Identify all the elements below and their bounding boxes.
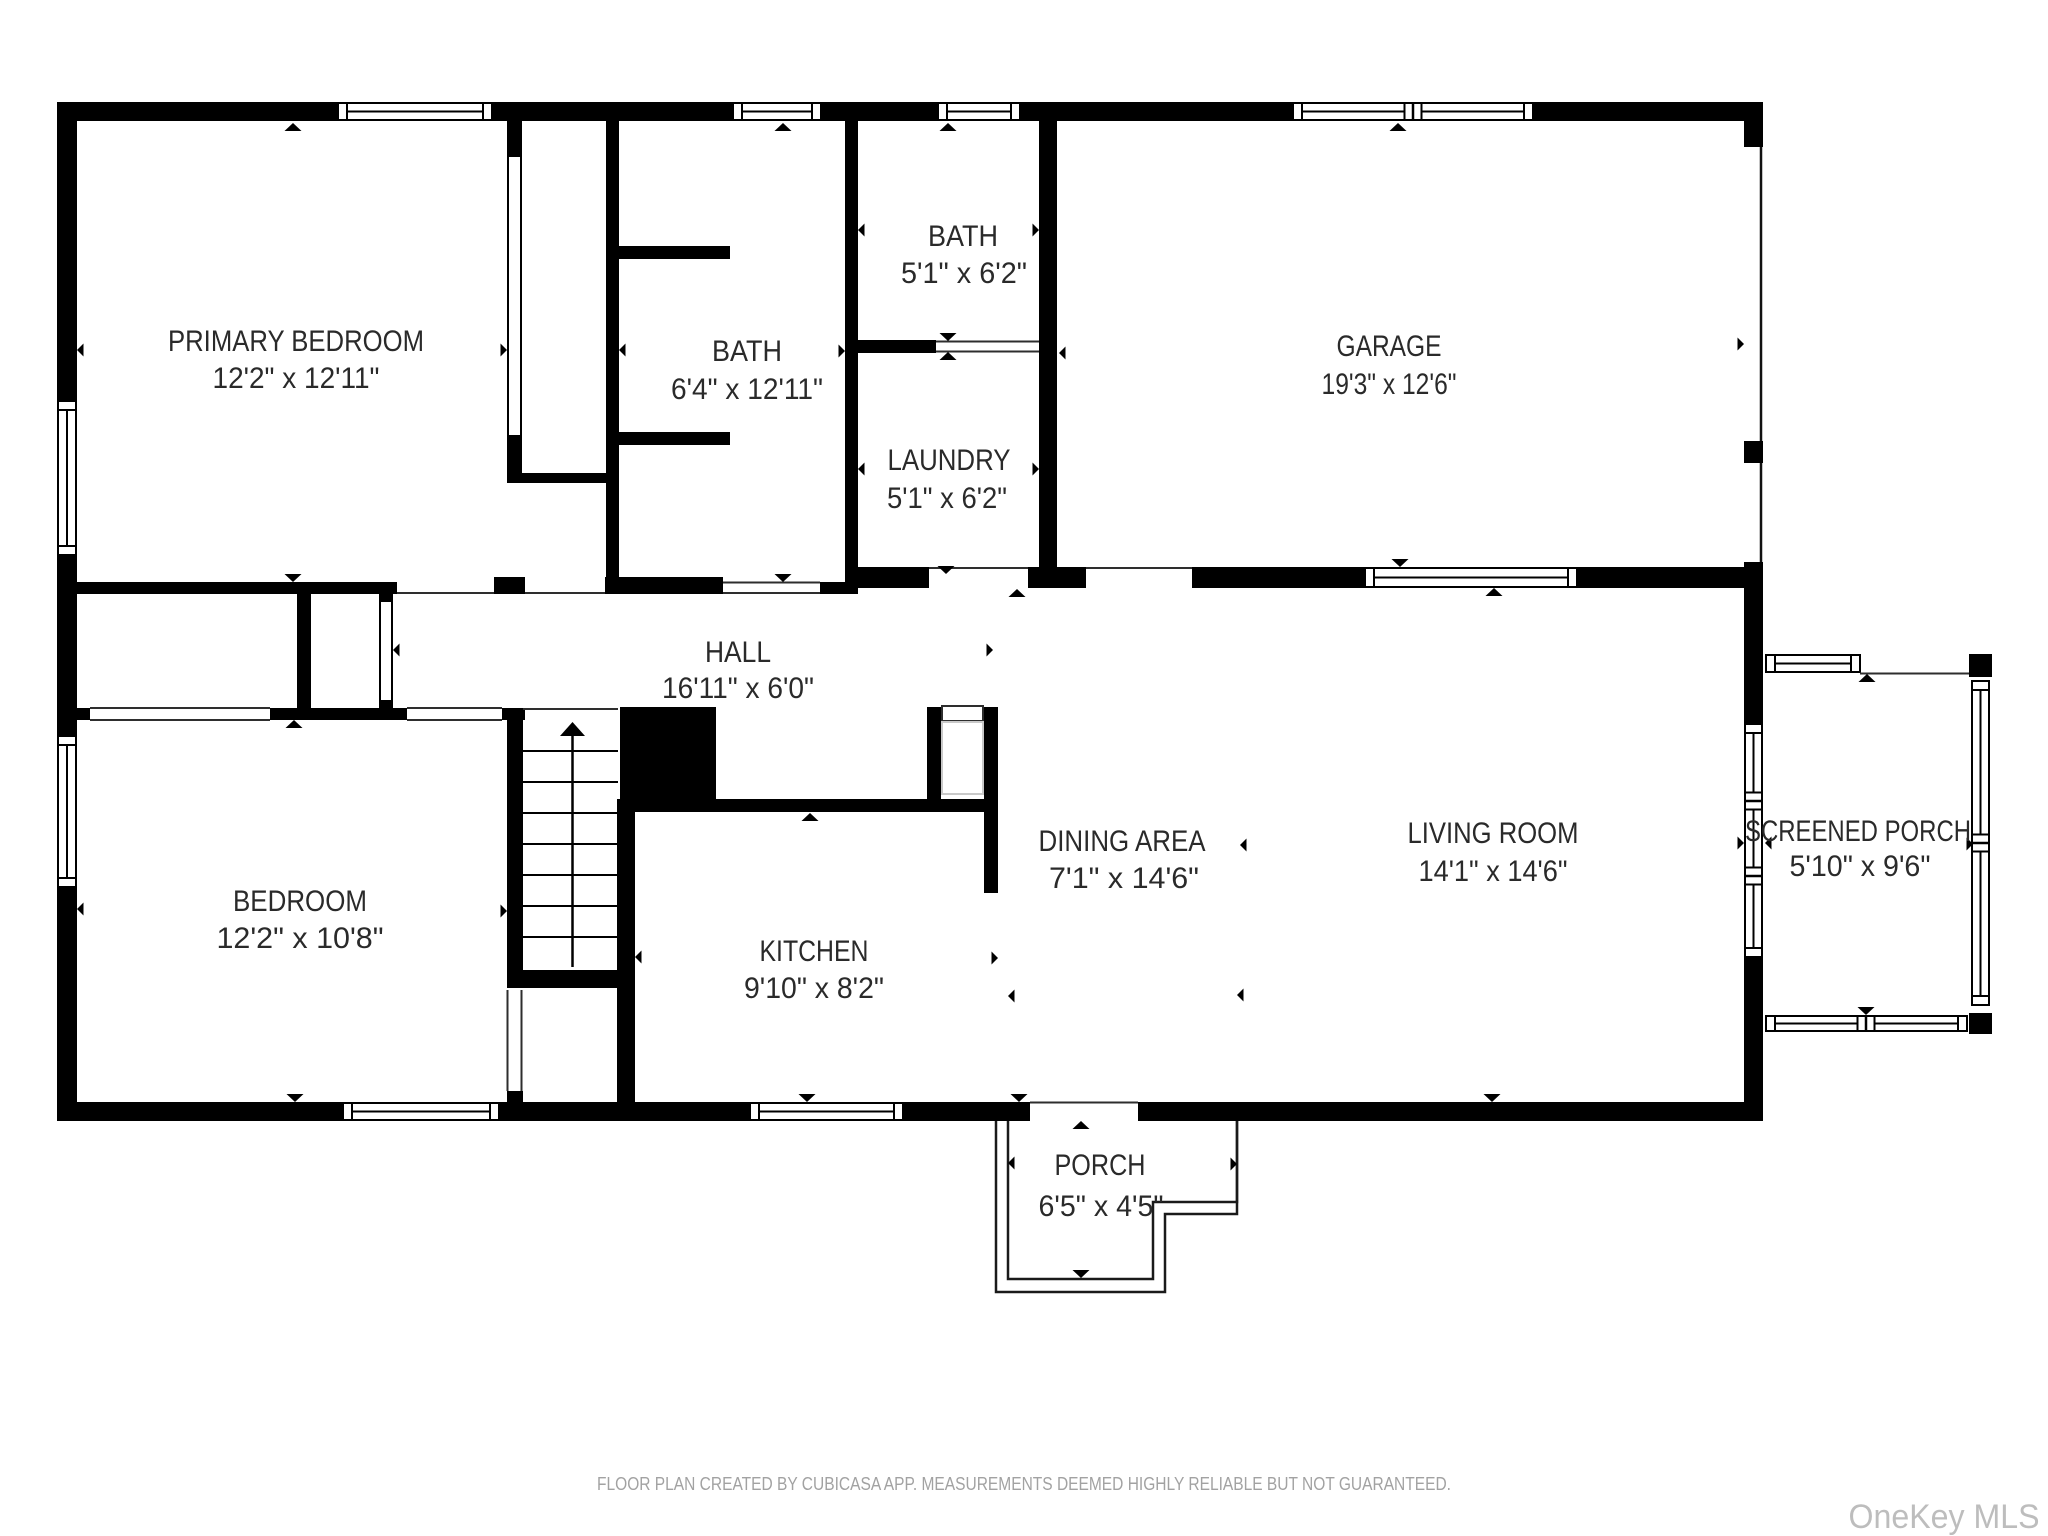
svg-text:PORCH: PORCH: [1055, 1149, 1146, 1182]
svg-text:HALL: HALL: [705, 636, 771, 669]
svg-text:7'1" x 14'6": 7'1" x 14'6": [1049, 862, 1199, 895]
svg-text:16'11" x 6'0": 16'11" x 6'0": [662, 672, 814, 705]
svg-text:DINING AREA: DINING AREA: [1039, 825, 1206, 858]
svg-text:OneKey MLS: OneKey MLS: [1849, 1498, 2040, 1536]
svg-text:6'4" x 12'11": 6'4" x 12'11": [671, 373, 823, 406]
svg-text:12'2" x 10'8": 12'2" x 10'8": [217, 922, 384, 955]
svg-text:14'1" x 14'6": 14'1" x 14'6": [1419, 855, 1568, 888]
svg-text:5'1" x 6'2": 5'1" x 6'2": [887, 482, 1007, 515]
svg-text:LAUNDRY: LAUNDRY: [888, 444, 1011, 477]
svg-text:5'1" x 6'2": 5'1" x 6'2": [901, 257, 1027, 290]
svg-text:BEDROOM: BEDROOM: [233, 885, 367, 918]
svg-text:SCREENED PORCH: SCREENED PORCH: [1745, 815, 1971, 848]
svg-text:PRIMARY BEDROOM: PRIMARY BEDROOM: [168, 325, 424, 358]
svg-text:KITCHEN: KITCHEN: [760, 935, 869, 968]
svg-text:LIVING ROOM: LIVING ROOM: [1408, 817, 1579, 850]
svg-text:5'10" x 9'6": 5'10" x 9'6": [1790, 850, 1931, 883]
svg-text:6'5" x 4'5": 6'5" x 4'5": [1039, 1190, 1164, 1223]
svg-text:9'10" x 8'2": 9'10" x 8'2": [744, 972, 884, 1005]
svg-text:GARAGE: GARAGE: [1337, 330, 1442, 363]
svg-text:BATH: BATH: [928, 220, 998, 253]
svg-text:12'2" x 12'11": 12'2" x 12'11": [213, 362, 380, 395]
svg-text:19'3" x 12'6": 19'3" x 12'6": [1322, 368, 1457, 401]
svg-text:BATH: BATH: [712, 335, 782, 368]
svg-text:FLOOR PLAN CREATED BY CUBICASA: FLOOR PLAN CREATED BY CUBICASA APP. MEAS…: [597, 1474, 1451, 1494]
